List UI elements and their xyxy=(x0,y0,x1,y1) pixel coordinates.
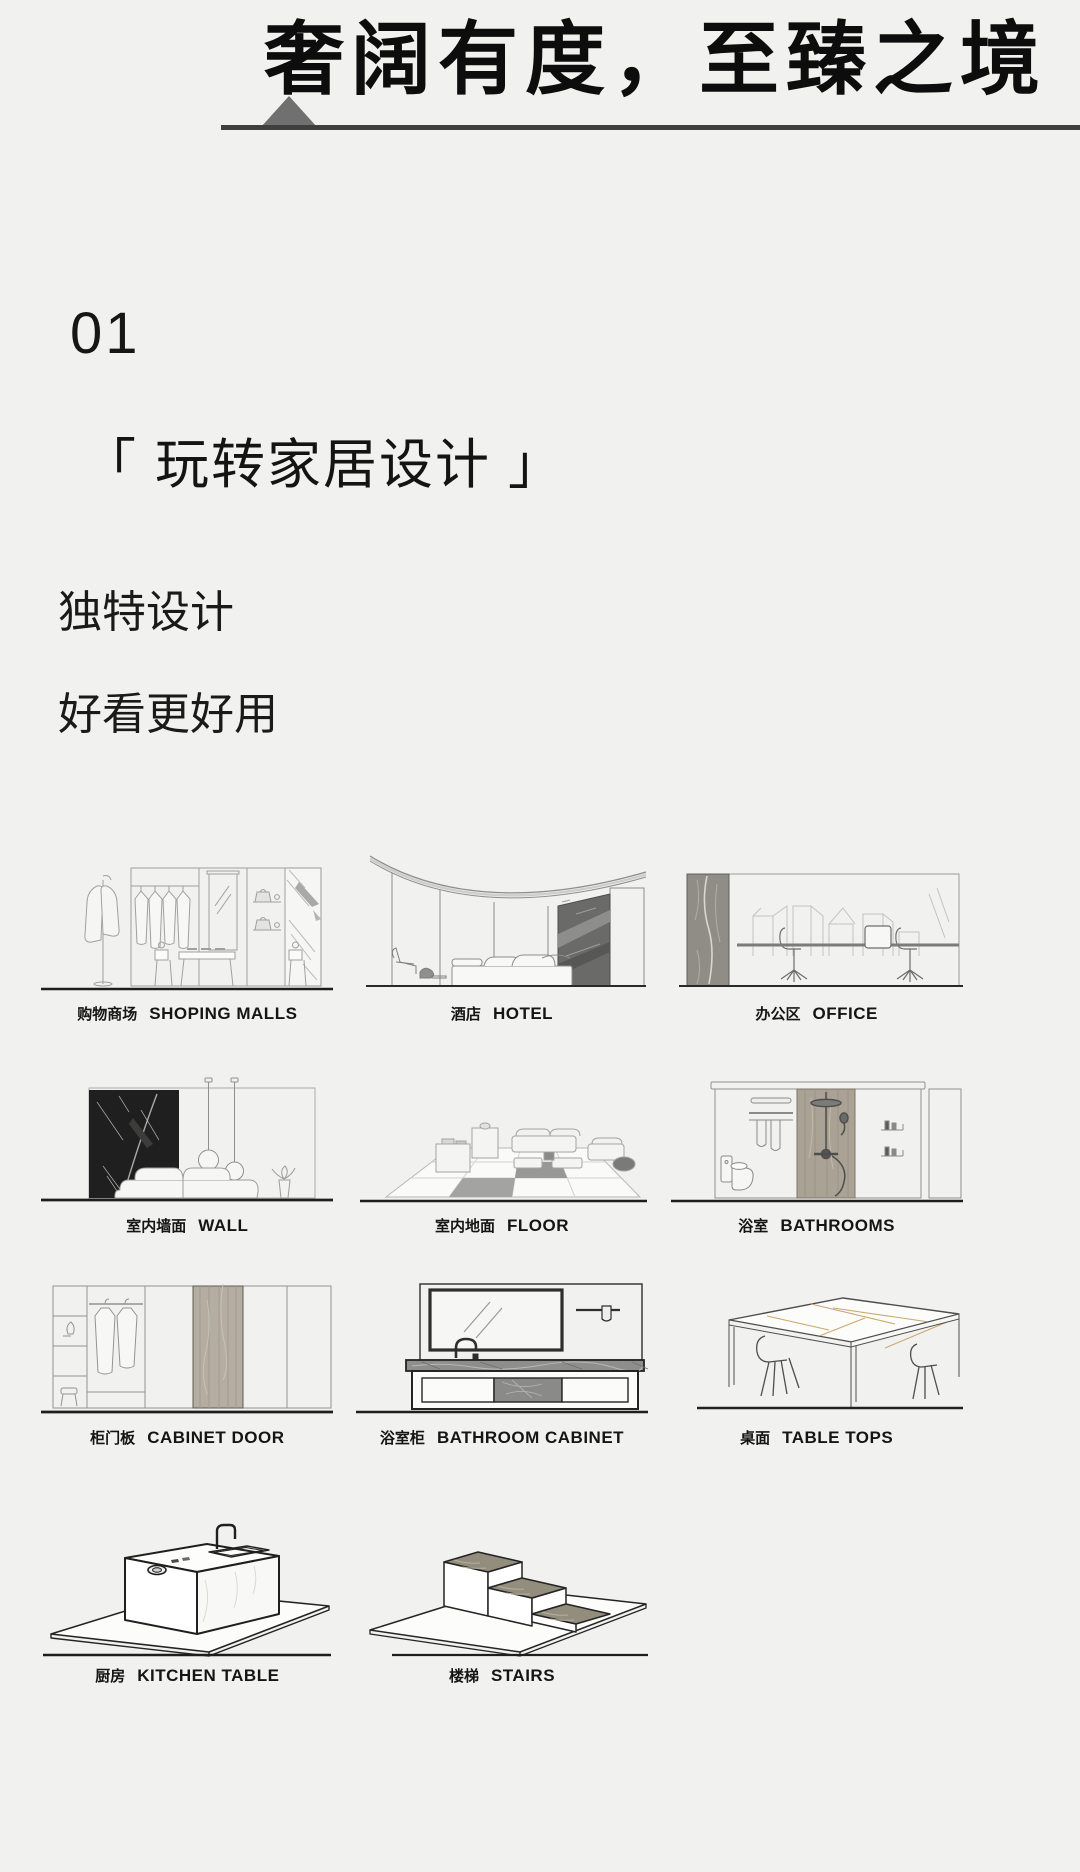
category-label-en: BATHROOMS xyxy=(780,1216,895,1236)
table-tops-illustration xyxy=(667,1270,967,1420)
category-card-kitchen-table: 厨房 KITCHEN TABLE xyxy=(36,1476,339,1688)
category-label-en: BATHROOM CABINET xyxy=(437,1428,624,1448)
bathroom-illustration xyxy=(667,1058,967,1208)
category-label: 楼梯 STAIRS xyxy=(351,1665,654,1686)
triangle-up-icon xyxy=(261,96,317,127)
category-label-en: CABINET DOOR xyxy=(147,1428,284,1448)
category-label-zh: 办公区 xyxy=(755,1003,800,1024)
category-card-bathroom-cabinet: 浴室柜 BATHROOM CABINET xyxy=(351,1238,654,1450)
category-label-en: STAIRS xyxy=(491,1666,555,1686)
category-label-zh: 桌面 xyxy=(740,1427,770,1448)
category-label-en: WALL xyxy=(198,1216,248,1236)
category-card-shopping-malls: 购物商场 SHOPING MALLS xyxy=(36,814,339,1026)
category-card-cabinet-door: 柜门板 CABINET DOOR xyxy=(36,1238,339,1450)
category-label: 购物商场 SHOPING MALLS xyxy=(36,1003,339,1024)
category-label: 办公区 OFFICE xyxy=(665,1003,968,1024)
stairs-illustration xyxy=(352,1508,652,1658)
category-label-en: SHOPING MALLS xyxy=(149,1004,297,1024)
category-label-en: FLOOR xyxy=(507,1216,569,1236)
category-label-en: HOTEL xyxy=(493,1004,553,1024)
category-label-zh: 室内墙面 xyxy=(126,1215,186,1236)
category-label: 酒店 HOTEL xyxy=(351,1003,654,1024)
category-label-zh: 购物商场 xyxy=(77,1003,137,1024)
category-label-zh: 柜门板 xyxy=(90,1427,135,1448)
category-label: 室内地面 FLOOR xyxy=(351,1215,654,1236)
category-label-en: OFFICE xyxy=(812,1004,877,1024)
category-label-en: KITCHEN TABLE xyxy=(137,1666,279,1686)
category-label: 桌面 TABLE TOPS xyxy=(665,1427,968,1448)
category-card-stairs: 楼梯 STAIRS xyxy=(351,1476,654,1688)
category-label-zh: 浴室 xyxy=(738,1215,768,1236)
category-card-floor: 室内地面 FLOOR xyxy=(351,1026,654,1238)
category-card-table-tops: 桌面 TABLE TOPS xyxy=(665,1238,968,1450)
category-label: 浴室 BATHROOMS xyxy=(665,1215,968,1236)
page-title: 奢阔有度，至臻之境 xyxy=(264,16,1047,104)
category-label-zh: 浴室柜 xyxy=(380,1427,425,1448)
interior-floor-illustration xyxy=(352,1058,652,1208)
category-card-bathrooms: 浴室 BATHROOMS xyxy=(665,1026,968,1238)
interior-wall-illustration xyxy=(37,1058,337,1208)
section-number: 01 xyxy=(70,300,141,367)
category-label-zh: 酒店 xyxy=(451,1003,481,1024)
category-card-office: 办公区 OFFICE xyxy=(665,814,968,1026)
header-divider xyxy=(221,125,1080,130)
hotel-illustration xyxy=(352,846,652,996)
category-label-zh: 楼梯 xyxy=(449,1665,479,1686)
category-grid: 购物商场 SHOPING MALLS xyxy=(36,814,968,1662)
category-label-en: TABLE TOPS xyxy=(782,1428,893,1448)
office-illustration xyxy=(667,846,967,996)
intro-text-2: 好看更好用 xyxy=(58,678,278,742)
category-card-hotel: 酒店 HOTEL xyxy=(351,814,654,1026)
category-label: 厨房 KITCHEN TABLE xyxy=(36,1665,339,1686)
category-label-zh: 厨房 xyxy=(95,1665,125,1686)
category-label: 室内墙面 WALL xyxy=(36,1215,339,1236)
bathroom-cabinet-illustration xyxy=(352,1270,652,1420)
category-label-zh: 室内地面 xyxy=(435,1215,495,1236)
kitchen-table-illustration xyxy=(37,1508,337,1658)
category-label: 柜门板 CABINET DOOR xyxy=(36,1427,339,1448)
shopping-mall-illustration xyxy=(37,846,337,996)
section-title: 「 玩转家居设计 」 xyxy=(82,420,564,499)
category-card-wall: 室内墙面 WALL xyxy=(36,1026,339,1238)
intro-text-1: 独特设计 xyxy=(58,576,234,640)
cabinet-door-illustration xyxy=(37,1270,337,1420)
category-label: 浴室柜 BATHROOM CABINET xyxy=(351,1427,654,1448)
